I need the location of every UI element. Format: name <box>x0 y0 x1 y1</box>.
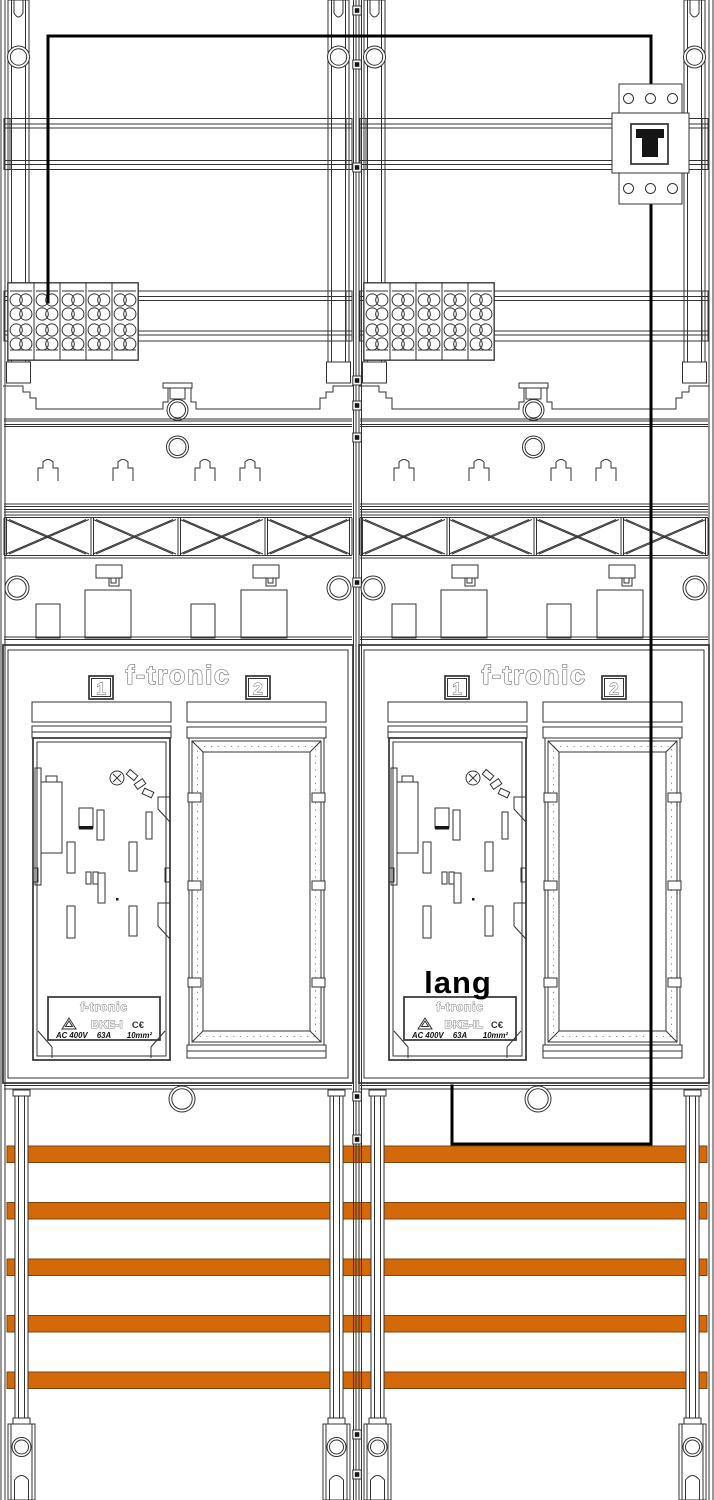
plate-cross-section-right: 10mm² <box>483 1031 509 1040</box>
slot2-number-right: 2 <box>609 680 618 699</box>
annotation-lang: lang <box>424 965 492 1000</box>
slot2-number-left: 2 <box>253 680 262 699</box>
plate-brand-right: f-tronic <box>436 1000 484 1014</box>
plate-cross-section-left: 10mm² <box>127 1031 153 1040</box>
slot1-number-left: 1 <box>96 680 105 699</box>
cabinet-drawing-svg: f-tronic 1 2 f-tronic BKE-I C€ AC 400V 6… <box>0 0 714 1500</box>
plate-current-right: 63A <box>453 1031 468 1040</box>
meter-board-drawing: f-tronic 1 2 f-tronic BKE-I C€ AC 400V 6… <box>0 0 714 1500</box>
plate-model-right: BKE-IL <box>444 1019 483 1031</box>
ce-mark-right: C€ <box>491 1020 504 1031</box>
plate-model-left: BKE-I <box>91 1019 123 1031</box>
plate-voltage-left: AC 400V <box>55 1031 88 1040</box>
slot1-number-right: 1 <box>452 680 461 699</box>
ce-mark-left: C€ <box>132 1020 145 1031</box>
main-switch-device <box>612 84 689 204</box>
plate-brand-left: f-tronic <box>80 1000 128 1014</box>
panel-header-right: f-tronic <box>482 660 587 690</box>
plate-voltage-right: AC 400V <box>411 1031 444 1040</box>
plate-current-left: 63A <box>97 1031 112 1040</box>
panel-header-left: f-tronic <box>126 660 231 690</box>
